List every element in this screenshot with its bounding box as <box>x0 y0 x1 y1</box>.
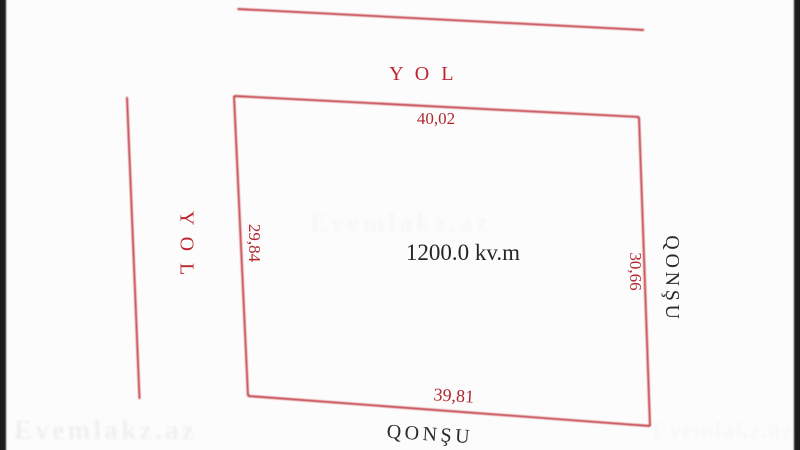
svg-text:29,84: 29,84 <box>245 224 264 263</box>
svg-text:Evemlakz.az: Evemlakz.az <box>652 418 792 444</box>
svg-text:Y O L: Y O L <box>389 63 457 85</box>
svg-text:QONŞU: QONŞU <box>661 235 683 322</box>
svg-text:39,81: 39,81 <box>433 384 475 406</box>
svg-text:Y O L: Y O L <box>176 211 198 279</box>
svg-text:1200.0 kv.m: 1200.0 kv.m <box>406 240 520 265</box>
svg-text:30,66: 30,66 <box>626 252 645 290</box>
svg-text:40,02: 40,02 <box>417 109 455 128</box>
svg-text:Evemlakz.az: Evemlakz.az <box>14 415 194 445</box>
svg-text:Evemlakz.az: Evemlakz.az <box>310 208 488 237</box>
